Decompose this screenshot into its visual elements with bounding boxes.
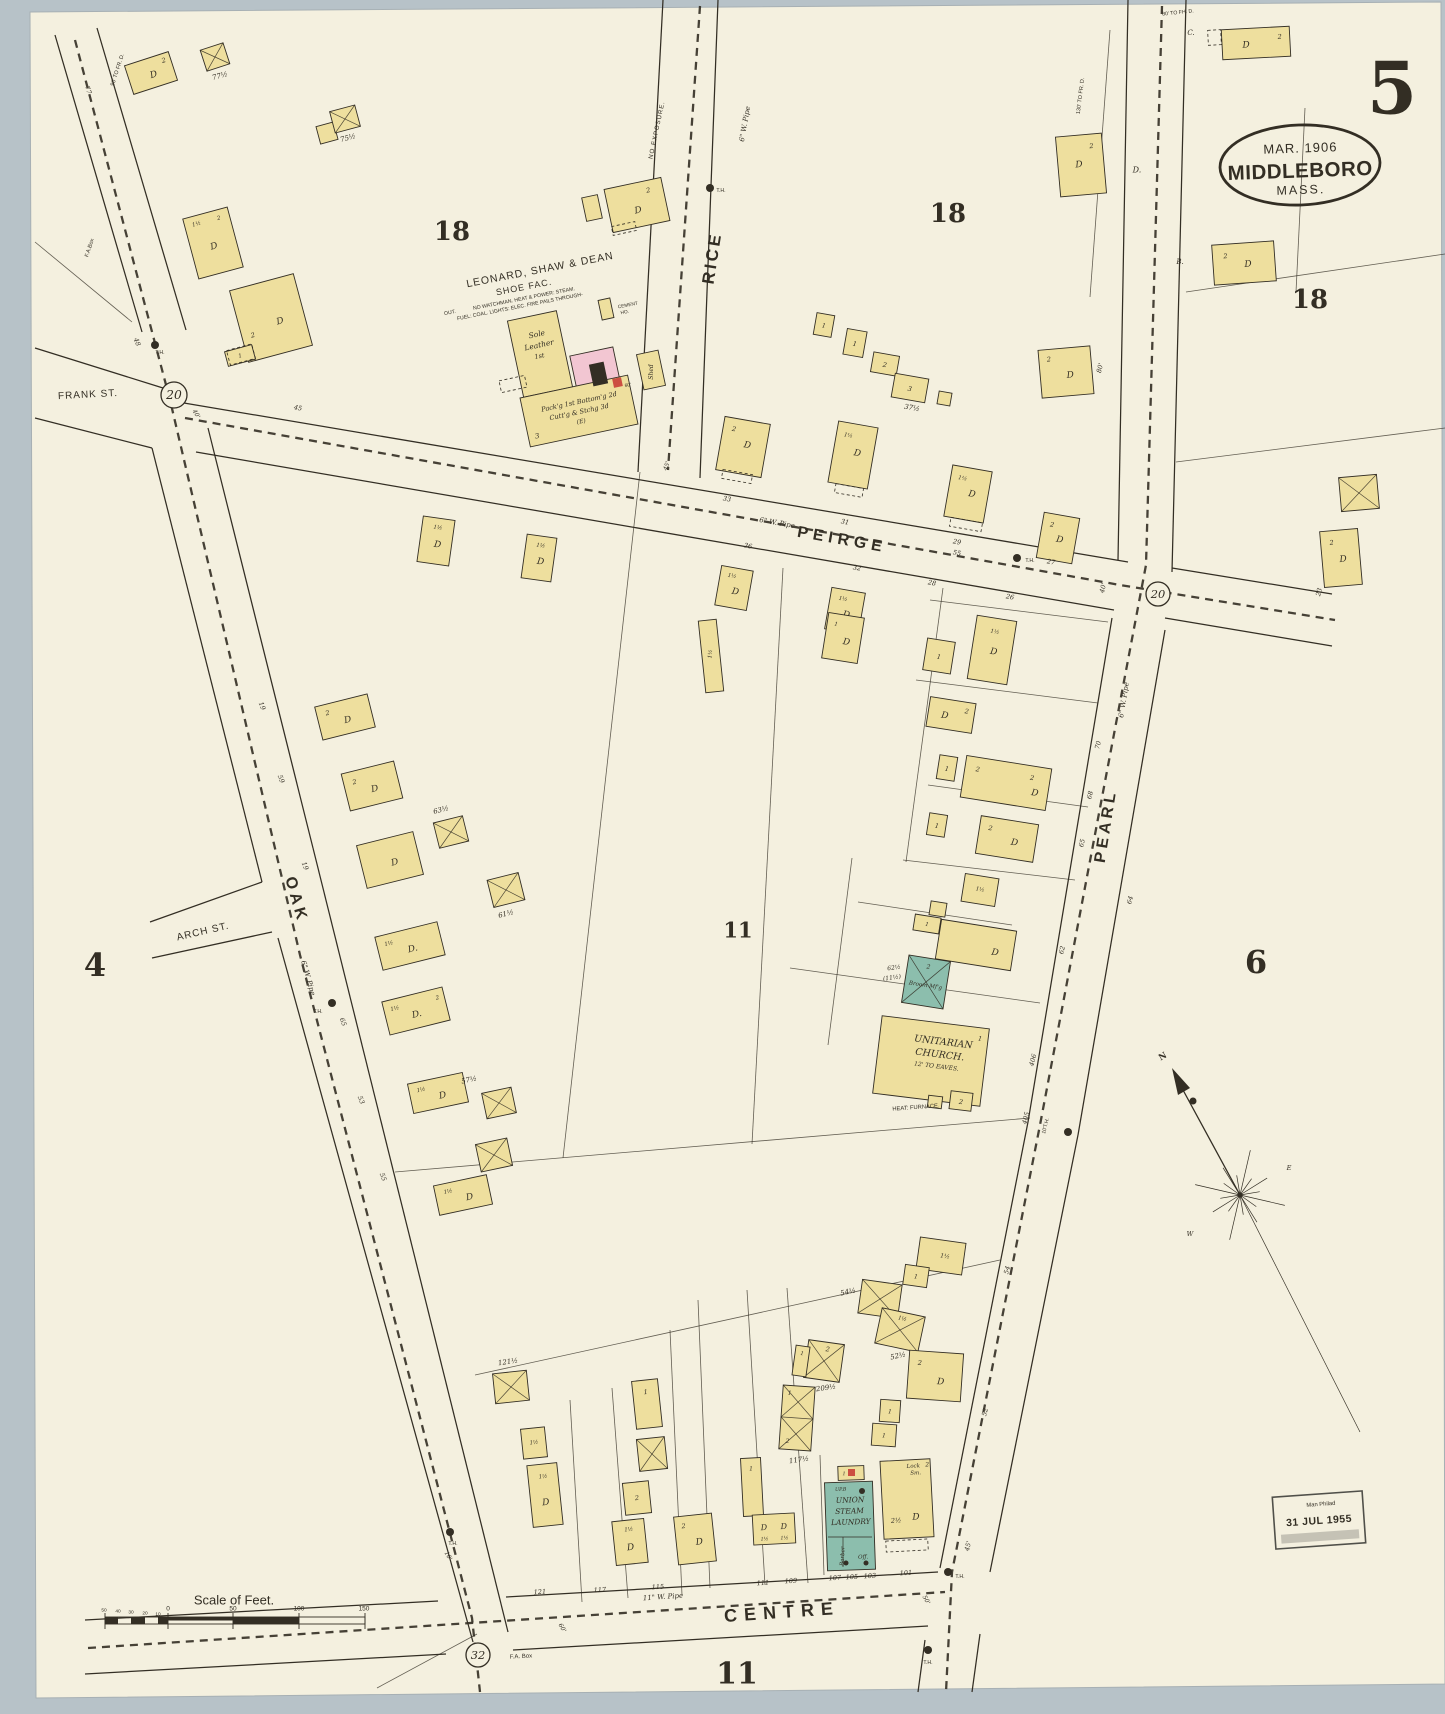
scale-bar-minor-label: 30 bbox=[128, 1610, 134, 1616]
building-label: 1½ bbox=[990, 628, 1000, 636]
building-yellow-frame: 1 bbox=[632, 1379, 663, 1429]
building-yellow-frame: 2D bbox=[906, 1350, 963, 1402]
building-yellow-frame: 2D bbox=[674, 1513, 717, 1565]
building-yellow-frame: 1½D bbox=[944, 465, 992, 523]
building-label: D bbox=[535, 557, 545, 568]
building-label: D bbox=[939, 710, 949, 721]
th-marker-dot bbox=[864, 1561, 869, 1566]
building-label: D bbox=[1065, 370, 1074, 381]
map-label: T.H. bbox=[313, 1009, 322, 1015]
building-label: 1 bbox=[888, 1408, 892, 1415]
th-marker-dot bbox=[151, 341, 159, 349]
building-label: 1½ bbox=[624, 1526, 634, 1534]
map-label: 4 bbox=[84, 946, 106, 984]
building-footprint bbox=[632, 1379, 663, 1429]
building-label: UNION bbox=[836, 1495, 865, 1505]
building-yellow-frame: 2 bbox=[949, 1091, 973, 1112]
building-label: 2 bbox=[1328, 539, 1334, 547]
building-yellow-frame: 1 bbox=[913, 914, 941, 934]
scale-bar-minor-label: 50 bbox=[101, 1608, 107, 1614]
map-label: 117 bbox=[594, 1586, 608, 1595]
boiler-red-mark bbox=[612, 377, 623, 388]
title-date: MAR. 1906 bbox=[1263, 139, 1338, 157]
map-label: 101 bbox=[900, 1569, 913, 1578]
building-footprint bbox=[937, 391, 952, 406]
building-label: 1 bbox=[842, 1471, 845, 1477]
building-label: Sm. bbox=[910, 1470, 921, 1477]
building-yellow-frame: 2D bbox=[1055, 133, 1106, 197]
building-yellow-frame: D2 bbox=[1221, 26, 1290, 60]
building-yellow-frame: 2 bbox=[870, 352, 899, 376]
building-yellow-frame bbox=[1339, 474, 1380, 511]
map-label: T.H. bbox=[716, 188, 725, 194]
th-marker-dot bbox=[844, 1561, 849, 1566]
circled-number-label: 20 bbox=[1150, 587, 1166, 601]
title-state: MASS. bbox=[1276, 182, 1325, 198]
building-label: 2 bbox=[1276, 33, 1282, 41]
map-label: T.H. bbox=[955, 1574, 964, 1580]
building-label: D bbox=[911, 1512, 920, 1522]
boiler-red-mark bbox=[848, 1469, 855, 1476]
th-marker-dot bbox=[924, 1646, 932, 1654]
building-green-special: UP.BUNIONSTEAMLAUNDRYBarberOff. bbox=[824, 1481, 875, 1571]
map-label: 11 bbox=[716, 1657, 758, 1692]
building-label: D bbox=[990, 947, 1000, 958]
building-yellow-frame: 2D bbox=[1212, 241, 1277, 285]
building-label: D bbox=[1074, 160, 1083, 171]
building-label: D bbox=[967, 489, 977, 500]
building-footprint bbox=[527, 1463, 563, 1528]
building-label: 1 bbox=[882, 1432, 886, 1439]
building-yellow-frame: 1½D bbox=[612, 1518, 648, 1565]
building-label: D bbox=[936, 1377, 945, 1388]
building-label: 1½ bbox=[538, 1473, 548, 1481]
building-yellow-frame: 1 bbox=[923, 638, 956, 674]
building-label: D bbox=[1054, 535, 1064, 546]
building-footprint bbox=[873, 1016, 990, 1107]
map-label: 36 bbox=[743, 541, 753, 550]
map-generated-layer: D21½2D2D12DSoleLeather1stShedPack'g 1st … bbox=[0, 0, 1445, 1714]
building-yellow-frame: 1½ bbox=[961, 874, 999, 907]
building-label: 2 bbox=[1222, 252, 1228, 260]
building-label: D bbox=[1243, 259, 1252, 270]
building-label: D bbox=[1241, 40, 1250, 50]
map-label: T.H. bbox=[1025, 558, 1034, 564]
map-label: T.H. bbox=[923, 1660, 932, 1666]
building-label: D bbox=[1029, 788, 1039, 799]
circled-number-label: 20 bbox=[165, 388, 182, 402]
building-label: 2 bbox=[924, 1461, 929, 1468]
building-label: D bbox=[852, 448, 862, 459]
map-label: B. bbox=[1175, 258, 1183, 266]
building-yellow-frame: 1 bbox=[843, 328, 867, 357]
map-label: 105 bbox=[846, 1573, 859, 1582]
scale-bar-segment bbox=[131, 1617, 145, 1624]
th-marker-dot bbox=[859, 1488, 865, 1494]
scale-bar-minor-label: 20 bbox=[142, 1611, 148, 1617]
map-label: 107 bbox=[829, 1574, 843, 1583]
th-marker-dot bbox=[446, 1528, 454, 1536]
scale-bar-segment bbox=[105, 1617, 118, 1624]
building-yellow-frame: 1½D bbox=[715, 566, 753, 611]
scale-bar-title: Scale of Feet. bbox=[194, 1593, 274, 1608]
map-label: 103 bbox=[864, 1572, 877, 1581]
building-yellow-frame: 2D bbox=[1038, 346, 1094, 398]
building-label: D bbox=[759, 1523, 767, 1532]
building-label: D bbox=[1338, 555, 1347, 566]
map-label: 11 bbox=[723, 918, 752, 943]
scale-bar-major-label: 0 bbox=[166, 1606, 170, 1613]
map-label: C. bbox=[1187, 29, 1194, 37]
building-yellow-frame: 1 bbox=[740, 1458, 763, 1517]
th-marker-dot bbox=[1013, 554, 1021, 562]
building-label: 1½ bbox=[760, 1535, 769, 1542]
building-yellow-frame: 2 bbox=[622, 1481, 651, 1516]
building-yellow-frame: 1 bbox=[936, 755, 958, 782]
building-yellow-frame: 1 bbox=[879, 1399, 900, 1422]
building-label: 1 bbox=[749, 1465, 753, 1472]
building-label: 1½ bbox=[706, 649, 714, 658]
building-yellow-frame: 12 bbox=[779, 1385, 815, 1451]
map-label: 115 bbox=[652, 1583, 665, 1592]
building-label: 2 bbox=[1088, 142, 1094, 150]
map-label: 26 bbox=[1004, 592, 1015, 601]
sanborn-map-sheet: D21½2D2D12DSoleLeather1stShedPack'g 1st … bbox=[0, 0, 1445, 1714]
building-label: 1½ bbox=[433, 524, 443, 532]
th-marker-dot bbox=[328, 999, 336, 1007]
building-label: D bbox=[730, 587, 740, 598]
building-label: D bbox=[541, 1498, 550, 1509]
building-footprint bbox=[906, 1350, 963, 1402]
building-label: 1½ bbox=[780, 1534, 789, 1541]
circled-number-label: 32 bbox=[471, 1648, 486, 1662]
map-label: 18 bbox=[1292, 285, 1328, 315]
building-yellow-frame: 1D bbox=[822, 612, 865, 663]
building-yellow-frame bbox=[937, 391, 952, 406]
building-yellow-frame: D1½D1½ bbox=[752, 1513, 796, 1545]
building-footprint bbox=[1221, 26, 1290, 60]
building-yellow-frame: 1½ bbox=[520, 1427, 547, 1459]
building-yellow-frame bbox=[636, 1437, 667, 1472]
map-label: 45 bbox=[292, 403, 303, 412]
building-footprint bbox=[752, 1513, 796, 1545]
building-yellow-frame bbox=[475, 1138, 512, 1172]
building-footprint bbox=[880, 1459, 934, 1540]
map-label: 55 bbox=[952, 548, 962, 557]
scale-bar-segment bbox=[158, 1617, 168, 1624]
building-yellow-frame: 1 bbox=[813, 313, 835, 338]
scale-bar-major-label: 150 bbox=[359, 1606, 370, 1613]
map-label: 29 bbox=[951, 537, 962, 546]
map-label: 121 bbox=[534, 1588, 547, 1597]
compass-east-letter: E bbox=[1286, 1164, 1292, 1172]
map-sheet-scan: D21½2D2D12DSoleLeather1stShedPack'g 1st … bbox=[0, 0, 1445, 1714]
building-yellow-frame: 1½D bbox=[527, 1463, 563, 1528]
scale-bar-minor-label: 10 bbox=[155, 1612, 161, 1618]
building-yellow-frame bbox=[493, 1370, 530, 1403]
map-label: T.H. bbox=[448, 1541, 457, 1547]
sheet-number: 5 bbox=[1367, 46, 1417, 131]
map-label: 109 bbox=[785, 1577, 798, 1586]
building-label: 1½ bbox=[529, 1439, 539, 1447]
building-label: 2 bbox=[917, 1359, 923, 1367]
map-label: 32 bbox=[852, 563, 862, 572]
scale-bar-segment bbox=[233, 1617, 299, 1624]
building-label: STEAM bbox=[835, 1506, 864, 1516]
map-label: 111 bbox=[757, 1579, 770, 1588]
building-yellow-frame: LockSm.22½D bbox=[880, 1459, 934, 1540]
building-yellow-frame: 1 bbox=[871, 1423, 896, 1447]
north-arrow-tassel bbox=[1190, 1098, 1197, 1105]
building-label: 2½ bbox=[890, 1516, 902, 1525]
building-green-special: 2Broom Mf'g bbox=[902, 955, 951, 1009]
building-yellow-frame: 1 bbox=[903, 1264, 930, 1287]
building-yellow-frame: 1½D bbox=[521, 534, 557, 582]
building-label: 2 bbox=[1045, 355, 1051, 363]
th-marker-dot bbox=[944, 1568, 952, 1576]
scale-bar-major-label: 100 bbox=[294, 1606, 305, 1613]
building-label: 2 bbox=[680, 1522, 686, 1530]
scale-bar-minor-label: 40 bbox=[115, 1609, 121, 1615]
building-footprint bbox=[612, 1518, 648, 1565]
scale-bar-segment bbox=[168, 1617, 233, 1621]
building-yellow-frame: 2D bbox=[716, 416, 771, 477]
building-label: 2 bbox=[634, 1494, 640, 1502]
map-label: 18 bbox=[434, 217, 470, 247]
building-label: D bbox=[694, 1537, 703, 1548]
building-yellow-frame bbox=[929, 901, 947, 917]
map-label: T.H. bbox=[155, 350, 164, 356]
building-label: LAUNDRY bbox=[830, 1517, 872, 1527]
building-yellow-frame: UNITARIANCHURCH.12' TO EAVES.1 bbox=[873, 1016, 990, 1107]
building-label: D bbox=[626, 1543, 635, 1554]
building-label: D bbox=[432, 540, 442, 551]
building-label: 1 bbox=[643, 1388, 648, 1396]
building-label: Lock bbox=[905, 1463, 920, 1470]
map-label: 28 bbox=[926, 578, 937, 587]
building-footprint bbox=[929, 901, 947, 917]
building-label: 1½ bbox=[536, 542, 546, 550]
map-label: 18 bbox=[930, 199, 966, 229]
building-label: 2 bbox=[957, 1098, 963, 1107]
map-label: 33 bbox=[722, 494, 732, 503]
map-label: D. bbox=[1132, 166, 1142, 175]
building-label: 1½ bbox=[940, 1252, 951, 1260]
building-label: D bbox=[779, 1522, 787, 1531]
building-label: Off. bbox=[858, 1554, 869, 1560]
map-label: 31 bbox=[840, 517, 850, 526]
building-label: D bbox=[1009, 838, 1019, 849]
building-label: D bbox=[841, 637, 851, 648]
building-label: D bbox=[742, 440, 752, 451]
building-label: 1 bbox=[788, 1390, 792, 1397]
building-label: 1½ bbox=[975, 885, 985, 893]
building-label: 2 bbox=[784, 1438, 789, 1445]
building-yellow-frame: 1 bbox=[926, 813, 947, 838]
building-yellow-frame: 2D bbox=[1320, 528, 1363, 587]
map-label: 60' bbox=[624, 382, 631, 389]
th-marker-dot bbox=[706, 184, 714, 192]
building-yellow-frame bbox=[482, 1087, 517, 1119]
map-label: 6 bbox=[1245, 943, 1267, 981]
building-label: UP.B bbox=[835, 1487, 847, 1493]
building-yellow-frame: 2 bbox=[804, 1340, 845, 1383]
th-marker-dot bbox=[1064, 1128, 1072, 1136]
building-label: D bbox=[988, 647, 998, 658]
building-yellow-frame: 1½D bbox=[417, 516, 455, 566]
building-label: Shed bbox=[648, 364, 655, 380]
map-label: F.A. Box bbox=[510, 1653, 533, 1660]
building-yellow-frame: 2D bbox=[1036, 512, 1079, 564]
